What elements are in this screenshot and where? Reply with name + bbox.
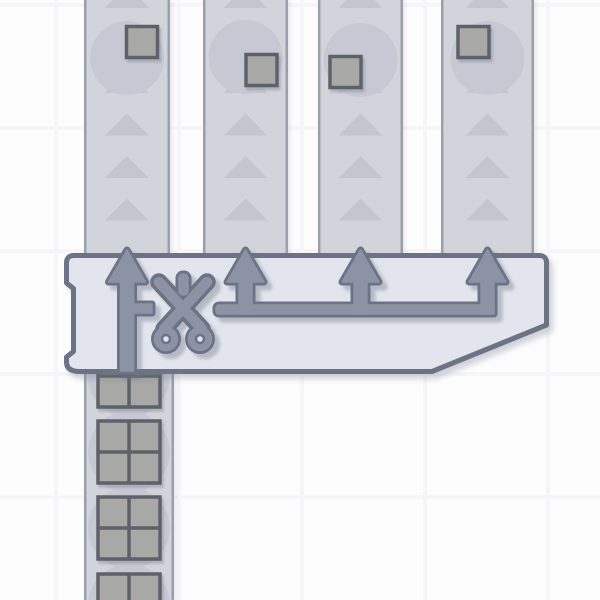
output-belt-4[interactable] (441, 0, 534, 259)
shape-item-square-full (98, 421, 160, 483)
output-belt-2[interactable] (203, 0, 288, 259)
shape-item-square-full (98, 574, 160, 600)
shape-item-square-quarter (246, 55, 277, 86)
scissors-ring-hole (162, 335, 170, 343)
factory-scene[interactable] (0, 0, 600, 600)
shape-item-square-quarter (458, 27, 489, 58)
shape-item-square-full (98, 497, 160, 559)
shape-item-square-quarter (127, 27, 158, 58)
shape-item-square-quarter (330, 57, 361, 88)
input-belt[interactable] (84, 335, 174, 600)
output-belt-3[interactable] (318, 0, 403, 259)
game-viewport[interactable] (0, 0, 600, 600)
scissors-ring-hole (196, 335, 204, 343)
output-belt-1[interactable] (84, 0, 170, 259)
